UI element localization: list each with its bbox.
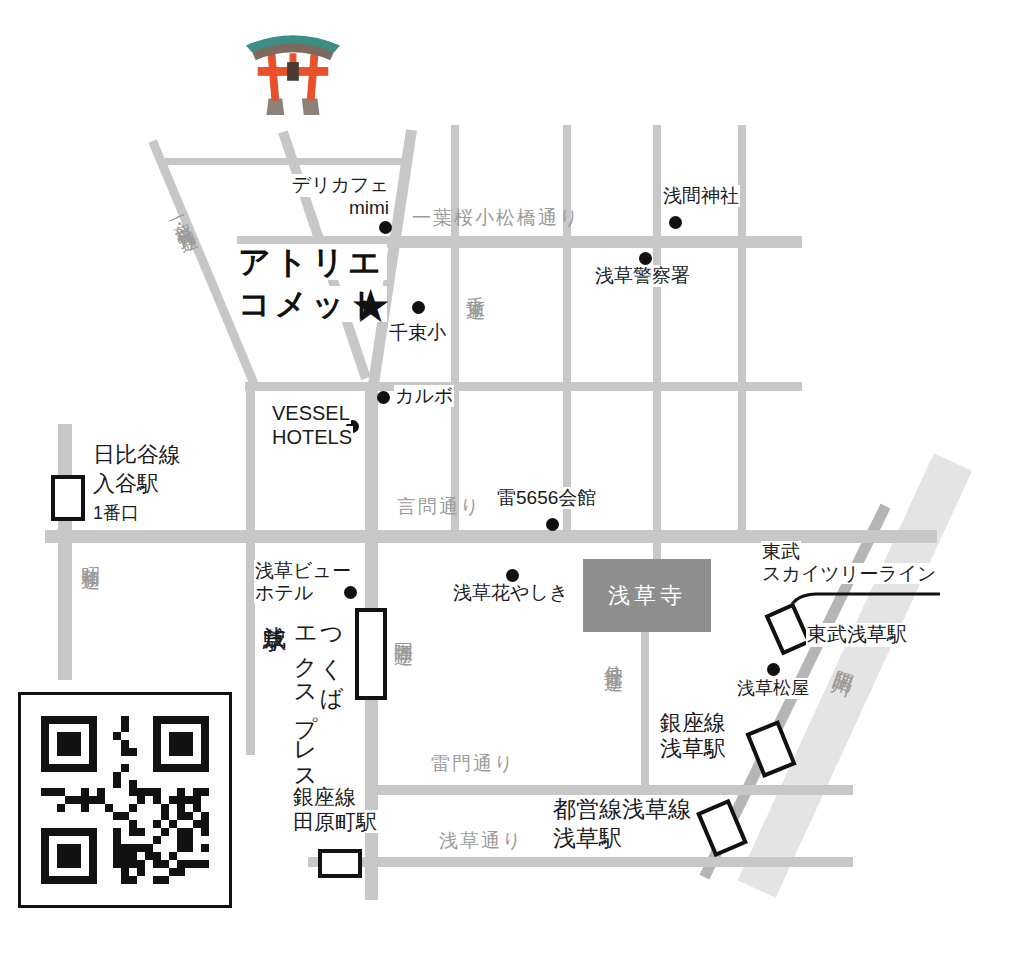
label-matsuya: 浅草松屋: [736, 678, 810, 699]
label-senzoku-dori: 千束通り: [464, 281, 486, 311]
street-asakusa-dori: [308, 857, 853, 867]
iriya-line3: 1番口: [93, 503, 139, 523]
access-map: 浅草寺 アトリエ コメット ★ 一葉桜小松橋通り 一葉桜・光月通り 千束通り 昭…: [0, 0, 1024, 978]
view-hotel-line2: ホテル: [254, 582, 314, 603]
view-hotel-line1: 浅草ビュー: [254, 560, 352, 581]
label-kaminari5656: 雷5656会館: [496, 487, 597, 509]
street-nakamise-dori: [641, 630, 649, 788]
toei-asakusa-line2: 浅草駅: [552, 825, 623, 851]
poi-dot-delicafe-mimi: [379, 221, 392, 234]
label-komatsubashi-dori: 一葉桜小松橋通り: [412, 207, 580, 229]
street-vertical-3: [653, 125, 661, 560]
label-delicafe-mimi: デリカフェ mimi: [278, 174, 390, 219]
delicafe-line1: デリカフェ: [291, 174, 390, 197]
torii-gate-icon: [243, 20, 343, 118]
label-karubo: カルボ: [394, 385, 454, 407]
label-showa-dori: 昭和通り: [79, 551, 101, 581]
label-kogetsu-dori: 一葉桜・光月通り: [163, 206, 197, 248]
label-tx-col1: つくば: [317, 613, 346, 698]
toei-asakusa-line1: 都営線浅草線: [552, 796, 692, 822]
title-line1: アトリエ: [236, 244, 387, 280]
qr-code: [18, 692, 232, 908]
label-asakusa-dori: 浅草通り: [439, 830, 523, 852]
label-sengen-shrine: 浅間神社: [662, 185, 740, 207]
iriya-line2: 入谷駅: [93, 471, 159, 496]
street-senzoku-dori: [451, 125, 459, 537]
street-top-connector: [158, 158, 408, 165]
label-tawaramachi-station: 銀座線 田原町駅: [292, 784, 378, 834]
ginza-asakusa-line1: 銀座線: [659, 710, 727, 735]
label-senzoku-elementary: 千束小: [388, 322, 447, 344]
label-tobu-skytree-line: 東武 スカイツリーライン: [761, 541, 938, 586]
street-showa-dori: [58, 424, 72, 680]
poi-dot-matsuya: [767, 663, 780, 676]
tobu-line2: スカイツリーライン: [761, 563, 938, 584]
label-police-station: 浅草警察署: [594, 265, 691, 287]
label-nakamise-dori: 仲見世通り: [602, 651, 624, 683]
label-kaminarimon-dori: 雷門通り: [431, 753, 515, 775]
street-mid-horizontal: [245, 382, 802, 391]
station-marker-tawaramachi: [318, 849, 362, 878]
label-view-hotel: 浅草ビュー ホテル: [254, 560, 352, 605]
station-marker-iriya: [51, 475, 85, 521]
ginza-asakusa-line2: 浅草駅: [659, 736, 727, 761]
label-kototoi-dori: 言問通り: [397, 496, 481, 518]
label-vessel-hotels: VESSEL HOTELS: [271, 402, 353, 449]
vessel-line2: HOTELS: [271, 426, 353, 448]
tawaramachi-line1: 銀座線: [292, 785, 357, 808]
tobu-line1: 東武: [761, 541, 801, 562]
label-tobu-asakusa-station: 東武浅草駅: [806, 623, 908, 647]
label-hanayashiki: 浅草花やしき: [452, 582, 569, 604]
label-tx-col3: 浅草駅: [260, 608, 289, 614]
street-vertical-2: [563, 125, 571, 537]
destination-star-marker: ★: [350, 283, 391, 329]
street-kaminarimon-dori: [370, 785, 853, 795]
tawaramachi-line2: 田原町駅: [292, 810, 378, 833]
iriya-line1: 日比谷線: [93, 442, 181, 467]
poi-dot-kaminari5656: [546, 518, 559, 531]
poi-dot-karubo: [377, 391, 390, 404]
label-tx-col2: エクスプレス: [291, 613, 320, 782]
poi-dot-hanayashiki: [506, 569, 519, 582]
label-kokusai-dori: 国際通り: [392, 627, 414, 657]
delicafe-line2: mimi: [348, 197, 390, 218]
poi-dot-senzoku-elementary: [412, 301, 425, 314]
poi-dot-police: [639, 252, 652, 265]
tobu-line-curve: [778, 583, 948, 628]
vessel-line1: VESSEL: [271, 402, 351, 424]
label-toei-asakusa-station: 都営線浅草線 浅草駅: [552, 795, 692, 853]
station-marker-tsukuba-express: [355, 608, 387, 700]
qr-modules: [41, 716, 209, 884]
label-iriya-station: 日比谷線 入谷駅 1番口: [93, 441, 181, 527]
sensoji-temple-block: 浅草寺: [583, 559, 711, 632]
poi-dot-sengen-shrine: [669, 216, 682, 229]
label-ginza-asakusa-station: 銀座線 浅草駅: [659, 710, 727, 763]
